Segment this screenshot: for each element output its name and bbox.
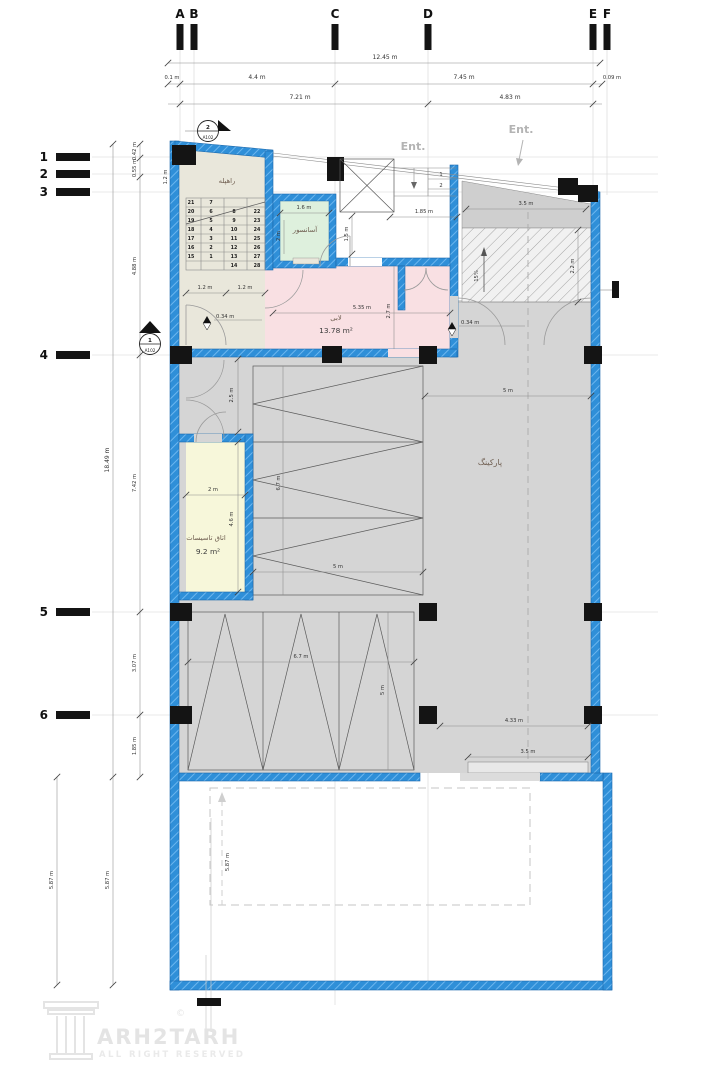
garage-door (468, 762, 588, 773)
watermark-column-icon (44, 1002, 98, 1059)
stair-number: 20 (188, 209, 195, 215)
dim-label: 2.2 m (570, 259, 576, 274)
dim-label: 6.7 m (294, 654, 309, 660)
step-number: 2 (439, 183, 442, 189)
dim-label: 0.55 m (132, 159, 138, 177)
stair-number: 2 (209, 245, 212, 251)
floor-plan: 21 20 19 18 17 16 15 7 6 5 4 3 2 1 8 9 1… (0, 0, 727, 1080)
stair-number: 26 (254, 245, 261, 251)
dim-label: 5 m (503, 388, 513, 394)
top-dimensions: A B C D E F 12.45 m 0.1 m 4.4 m 7.45 m 0… (165, 7, 622, 107)
floor-plan-drawing: 21 20 19 18 17 16 15 7 6 5 4 3 2 1 8 9 1… (0, 0, 727, 1080)
utility-area: 9.2 m² (196, 547, 220, 556)
dim-label: 4.4 m (248, 74, 265, 81)
dim-label: 0.1 m (165, 75, 180, 81)
lobby-area: 13.78 m² (319, 326, 353, 335)
dim-label: 5 m (333, 564, 343, 570)
dim-label: 0.42 m (132, 142, 138, 160)
entrance-label: Ent. (509, 123, 534, 136)
dim-label: 3.07 m (132, 654, 138, 672)
dim-label: 1.6 m (297, 205, 312, 211)
lobby-label: لابی (330, 314, 342, 322)
dim-label: 3.5 m (521, 749, 536, 755)
watermark: ARH2TARH © ALL RIGHT RESERVED (44, 1002, 245, 1060)
stair-number: 27 (254, 254, 261, 260)
entrance-label: Ent. (401, 140, 426, 153)
stair-number: 13 (231, 254, 238, 260)
grid-number: 1 (40, 150, 48, 164)
grid-letter: B (189, 7, 198, 21)
watermark-copyright: © (176, 1009, 185, 1019)
dim-label: 2 m (276, 231, 282, 241)
stair-number: 18 (188, 227, 195, 233)
stair-number: 23 (254, 218, 261, 224)
stair-number: 7 (209, 200, 212, 206)
section-number: 2 (206, 125, 210, 131)
dim-label: 4.33 m (505, 718, 523, 724)
utility-fill (186, 442, 245, 592)
dim-label: 2 m (208, 487, 218, 493)
stair-number: 15 (188, 254, 195, 260)
dim-label: 6.7 m (276, 476, 282, 491)
stair-number: 3 (209, 236, 212, 242)
dim-label: 1.2 m (163, 170, 169, 185)
stair-number: 28 (254, 263, 261, 269)
dim-label: 0.09 m (603, 75, 621, 81)
stair-number: 24 (254, 227, 261, 233)
dim-label: 4.83 m (499, 94, 520, 101)
grid-letter: A (175, 7, 185, 21)
dim-label: 1.2 m (198, 285, 213, 291)
dim-label: 18.49 m (104, 447, 111, 472)
grid-number: 4 (40, 348, 48, 362)
dim-label: 2.5 m (229, 388, 235, 403)
dim-label: 1.5 m (344, 227, 350, 242)
dim-label: 5.87 m (49, 871, 55, 889)
dim-label: 4.6 m (229, 512, 235, 527)
watermark-brand: ARH2TARH (97, 1025, 240, 1049)
grid-number: 2 (40, 167, 48, 181)
grid-letter: D (423, 7, 433, 21)
dim-label: 1.85 m (415, 209, 433, 215)
yard: 5.87 m (206, 788, 530, 1032)
grid-number: 3 (40, 185, 48, 199)
grid-letter: F (603, 7, 611, 21)
dim-label: 7.42 m (132, 474, 138, 492)
section-number: 1 (148, 338, 152, 344)
dim-label: 4.88 m (132, 257, 138, 275)
stair-number: 21 (188, 200, 195, 206)
dim-label: 1.85 m (132, 737, 138, 755)
level-label: 0.34 m (216, 314, 234, 320)
dim-label: 5.87 m (225, 853, 231, 871)
dim-label: 5.35 m (353, 305, 371, 311)
dim-label: 1.2 m (238, 285, 253, 291)
dim-label: 7.21 m (289, 94, 310, 101)
slope-label: 15% (474, 270, 480, 282)
grid-number: 6 (40, 708, 48, 722)
parking-fill-right (458, 300, 591, 357)
dim-label: 2.7 m (386, 304, 392, 319)
dim-label: 5.87 m (105, 871, 111, 889)
stair-number: 16 (188, 245, 195, 251)
stair-number: 5 (209, 218, 212, 224)
stair-number: 17 (188, 236, 195, 242)
stair-number: 19 (188, 218, 195, 224)
dim-label: 5 m (380, 685, 386, 695)
watermark-line2: ALL RIGHT RESERVED (99, 1050, 245, 1060)
dim-label: 12.45 m (373, 54, 398, 61)
stair-number: 14 (231, 263, 238, 269)
parking-label: پارکینگ (478, 457, 502, 467)
stair-number: 12 (231, 245, 238, 251)
dim-label: 7.45 m (453, 74, 474, 81)
left-dimensions: 1 2 3 4 5 6 18.49 m 0.42 m 0.55 m 4.88 m… (40, 141, 144, 988)
grid-letter: E (589, 7, 597, 21)
stair-number: 22 (254, 209, 261, 215)
stair-number: 10 (231, 227, 238, 233)
section-sheet: A102 (203, 135, 214, 140)
grid-number: 5 (40, 605, 48, 619)
elevator-label: آسانسور (292, 225, 319, 234)
dim-label: 3.5 m (519, 201, 534, 207)
stair-number: 1 (209, 254, 212, 260)
step-number: 1 (439, 172, 442, 178)
stair-number: 11 (231, 236, 238, 242)
grid-letter: C (331, 7, 340, 21)
utility-label: اتاق تاسیسات (186, 534, 226, 542)
level-label: 0.34 m (461, 320, 479, 326)
stair-room-label: راهپله (219, 177, 236, 185)
section-sheet: A102 (145, 348, 156, 353)
stair-number: 25 (254, 236, 261, 242)
